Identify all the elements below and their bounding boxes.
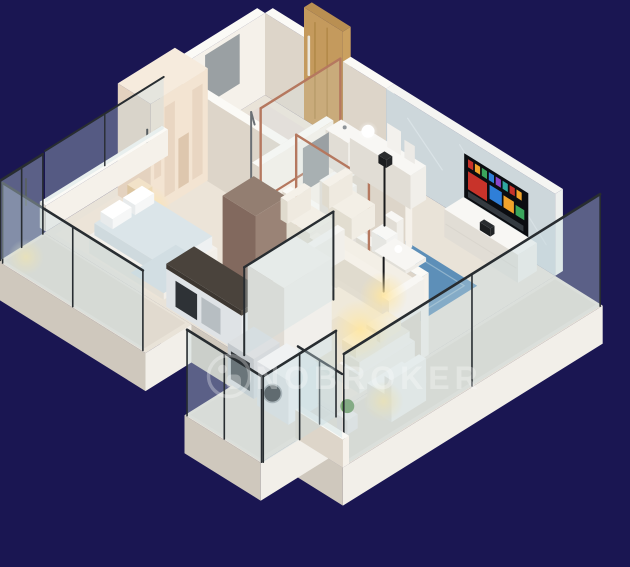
armchair-back bbox=[281, 198, 288, 224]
balcony-parapet bbox=[343, 436, 349, 468]
ball-lamp bbox=[362, 125, 375, 138]
wardrobe-arch bbox=[192, 84, 202, 180]
wardrobe-niche bbox=[178, 132, 188, 189]
logo-dot bbox=[218, 365, 227, 374]
pendant-glow bbox=[360, 272, 408, 320]
armchair-back bbox=[322, 182, 329, 208]
logo-square bbox=[227, 375, 242, 390]
watermark-text: NOBROKER bbox=[256, 360, 483, 396]
faucet bbox=[343, 125, 347, 129]
table-decor bbox=[394, 245, 402, 253]
floorplan-svg: NOBROKER bbox=[0, 0, 630, 567]
floorplan-render: NOBROKER bbox=[0, 0, 630, 567]
